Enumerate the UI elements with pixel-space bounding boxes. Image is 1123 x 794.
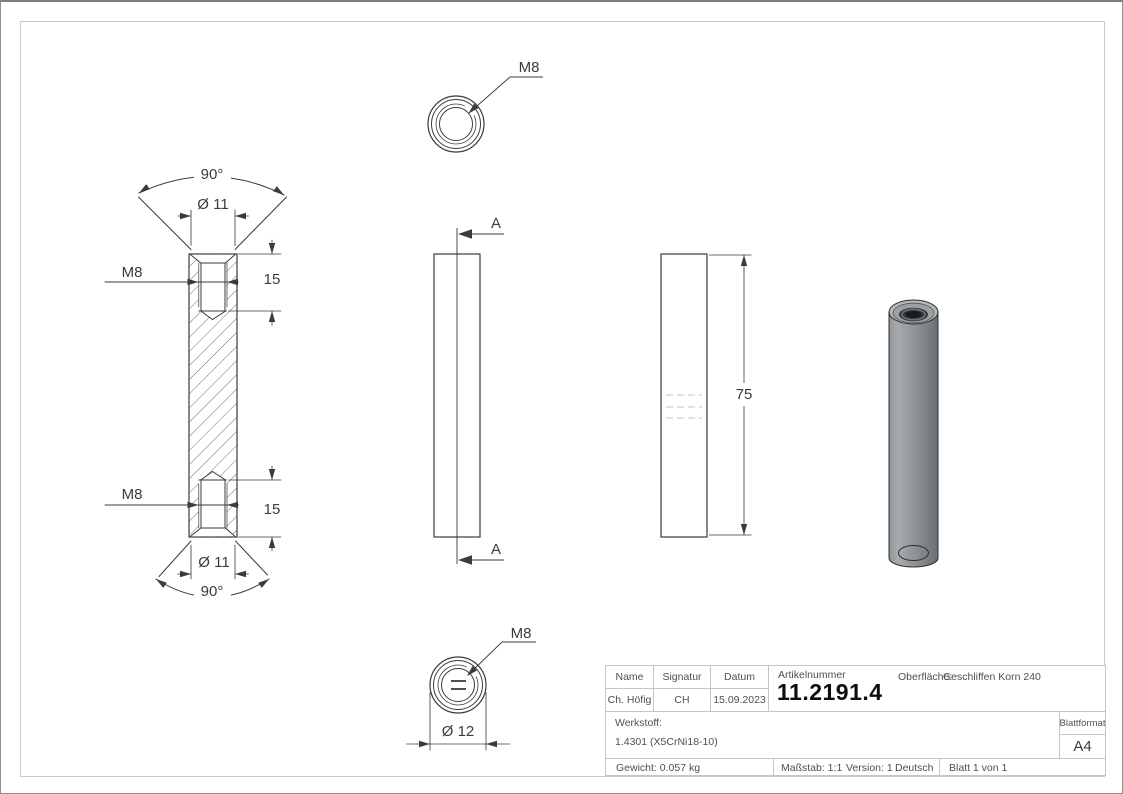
language-value: Deutsch: [895, 762, 934, 774]
dia-dim-bottom: Ø 11: [198, 554, 229, 571]
title-block: Name Signatur Datum Ch. Höfig CH 15.09.2…: [605, 665, 1106, 776]
angle-dim-bottom: 90°: [201, 583, 224, 600]
version-value: Version: 1: [846, 762, 893, 774]
depth-dim-bottom: 15: [264, 501, 281, 518]
section-view: 90° Ø 11 M8 15: [105, 164, 287, 600]
weight-cell: Gewicht: 0.057 kg: [605, 758, 774, 776]
bottom-view-thread-label: M8: [511, 625, 532, 642]
author-name: Ch. Höfig: [605, 688, 654, 712]
sheet-number-cell: Blatt 1 von 1: [939, 758, 1106, 776]
weight-value: Gewicht: 0.057 kg: [616, 762, 700, 774]
sheet-number-value: Blatt 1 von 1: [949, 762, 1007, 774]
name-header: Name: [605, 665, 654, 689]
angle-dim-top: 90°: [201, 166, 224, 183]
section-label-top: A: [491, 215, 501, 232]
thread-label-bottom: M8: [122, 486, 143, 503]
article-cell: Artikelnummer 11.2191.4 Oberfläche: Gesc…: [768, 665, 1106, 712]
front-view: A A: [434, 215, 504, 565]
surface-value: Geschliffen Korn 240: [943, 671, 1041, 683]
sheet-format-label: Blattformat: [1059, 711, 1106, 735]
length-dim: 75: [736, 386, 753, 403]
signature-header: Signatur: [653, 665, 711, 689]
date-value: 15.09.2023: [710, 688, 769, 712]
section-label-bottom: A: [491, 541, 501, 558]
date-header: Datum: [710, 665, 769, 689]
side-view: 75: [661, 254, 752, 537]
thread-label-top: M8: [122, 264, 143, 281]
material-label: Werkstoff:: [615, 717, 662, 729]
material-cell: Werkstoff: 1.4301 (X5CrNi18-10): [605, 711, 1060, 759]
drawing-sheet: 90° Ø 11 M8 15: [0, 0, 1123, 794]
dia-dim-top: Ø 11: [197, 196, 228, 213]
scale-value: Maßstab: 1:1: [781, 762, 842, 774]
author-signature: CH: [653, 688, 711, 712]
outer-dia-dim: Ø 12: [442, 723, 475, 740]
sheet-format-value: A4: [1059, 734, 1106, 759]
material-value: 1.4301 (X5CrNi18-10): [615, 736, 718, 748]
top-view: M8: [428, 59, 543, 152]
bottom-view: M8 Ø 12: [406, 625, 536, 751]
scale-cell: Maßstab: 1:1 Version: 1 Deutsch: [773, 758, 940, 776]
depth-dim-top: 15: [264, 271, 281, 288]
article-number: 11.2191.4: [777, 679, 883, 706]
iso-view: [889, 300, 938, 567]
top-view-thread-label: M8: [519, 59, 540, 76]
